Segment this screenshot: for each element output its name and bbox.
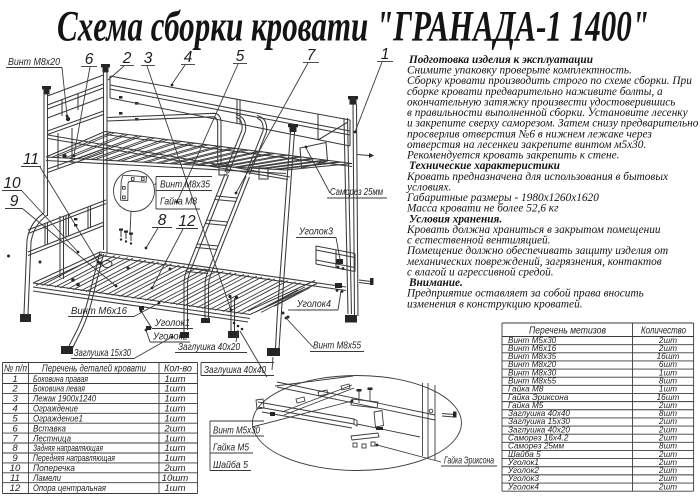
svg-text:Винт М8х55: Винт М8х55: [313, 340, 361, 352]
svg-text:Уголок4: Уголок4: [296, 298, 331, 310]
svg-text:Перечень метизов: Перечень метизов: [529, 325, 606, 336]
svg-text:7: 7: [307, 47, 317, 64]
svg-text:11: 11: [23, 151, 39, 168]
svg-text:1: 1: [381, 46, 390, 63]
svg-text:Гайка М5: Гайка М5: [213, 442, 249, 454]
svg-text:Заглушка 15х30: Заглушка 15х30: [74, 347, 131, 359]
svg-text:10: 10: [3, 175, 21, 192]
svg-text:4: 4: [184, 49, 193, 66]
svg-text:12: 12: [178, 213, 196, 230]
svg-text:Гайка М8: Гайка М8: [160, 196, 197, 208]
svg-text:Шайба 5: Шайба 5: [213, 459, 248, 471]
svg-text:Уголок1: Уголок1: [154, 317, 190, 329]
svg-text:Заглушка 40х40: Заглушка 40х40: [204, 364, 266, 376]
svg-text:6: 6: [85, 51, 94, 68]
svg-text:2шт: 2шт: [658, 482, 677, 491]
svg-text:Количество: Количество: [641, 325, 686, 336]
svg-text:3: 3: [144, 50, 153, 67]
svg-text:9: 9: [10, 193, 19, 210]
svg-text:Уголок3: Уголок3: [298, 226, 333, 238]
svg-text:Винт М8х35: Винт М8х35: [160, 179, 210, 191]
svg-text:8: 8: [158, 212, 167, 229]
svg-text:Опора центральная: Опора центральная: [33, 483, 106, 494]
svg-text:Винт М8х20: Винт М8х20: [8, 56, 60, 68]
svg-text:Гайка Эриксона: Гайка Эриксона: [444, 455, 494, 467]
svg-text:1шт: 1шт: [164, 483, 185, 494]
svg-text:Винт М6х16: Винт М6х16: [71, 305, 127, 317]
svg-text:Саморез 25мм: Саморез 25мм: [330, 186, 383, 198]
svg-text:5: 5: [236, 48, 245, 65]
svg-text:Схема сборки кровати "ГРАНАДА-: Схема сборки кровати "ГРАНАДА-1 1400": [57, 4, 649, 51]
svg-text:Уголок4: Уголок4: [507, 482, 539, 491]
svg-text:12: 12: [10, 483, 21, 494]
svg-text:2: 2: [122, 50, 132, 67]
svg-text:Заглушка 40х20: Заглушка 40х20: [178, 341, 240, 353]
svg-text:изменения в конструкцию кроват: изменения в конструкцию кроватей.: [407, 298, 583, 310]
